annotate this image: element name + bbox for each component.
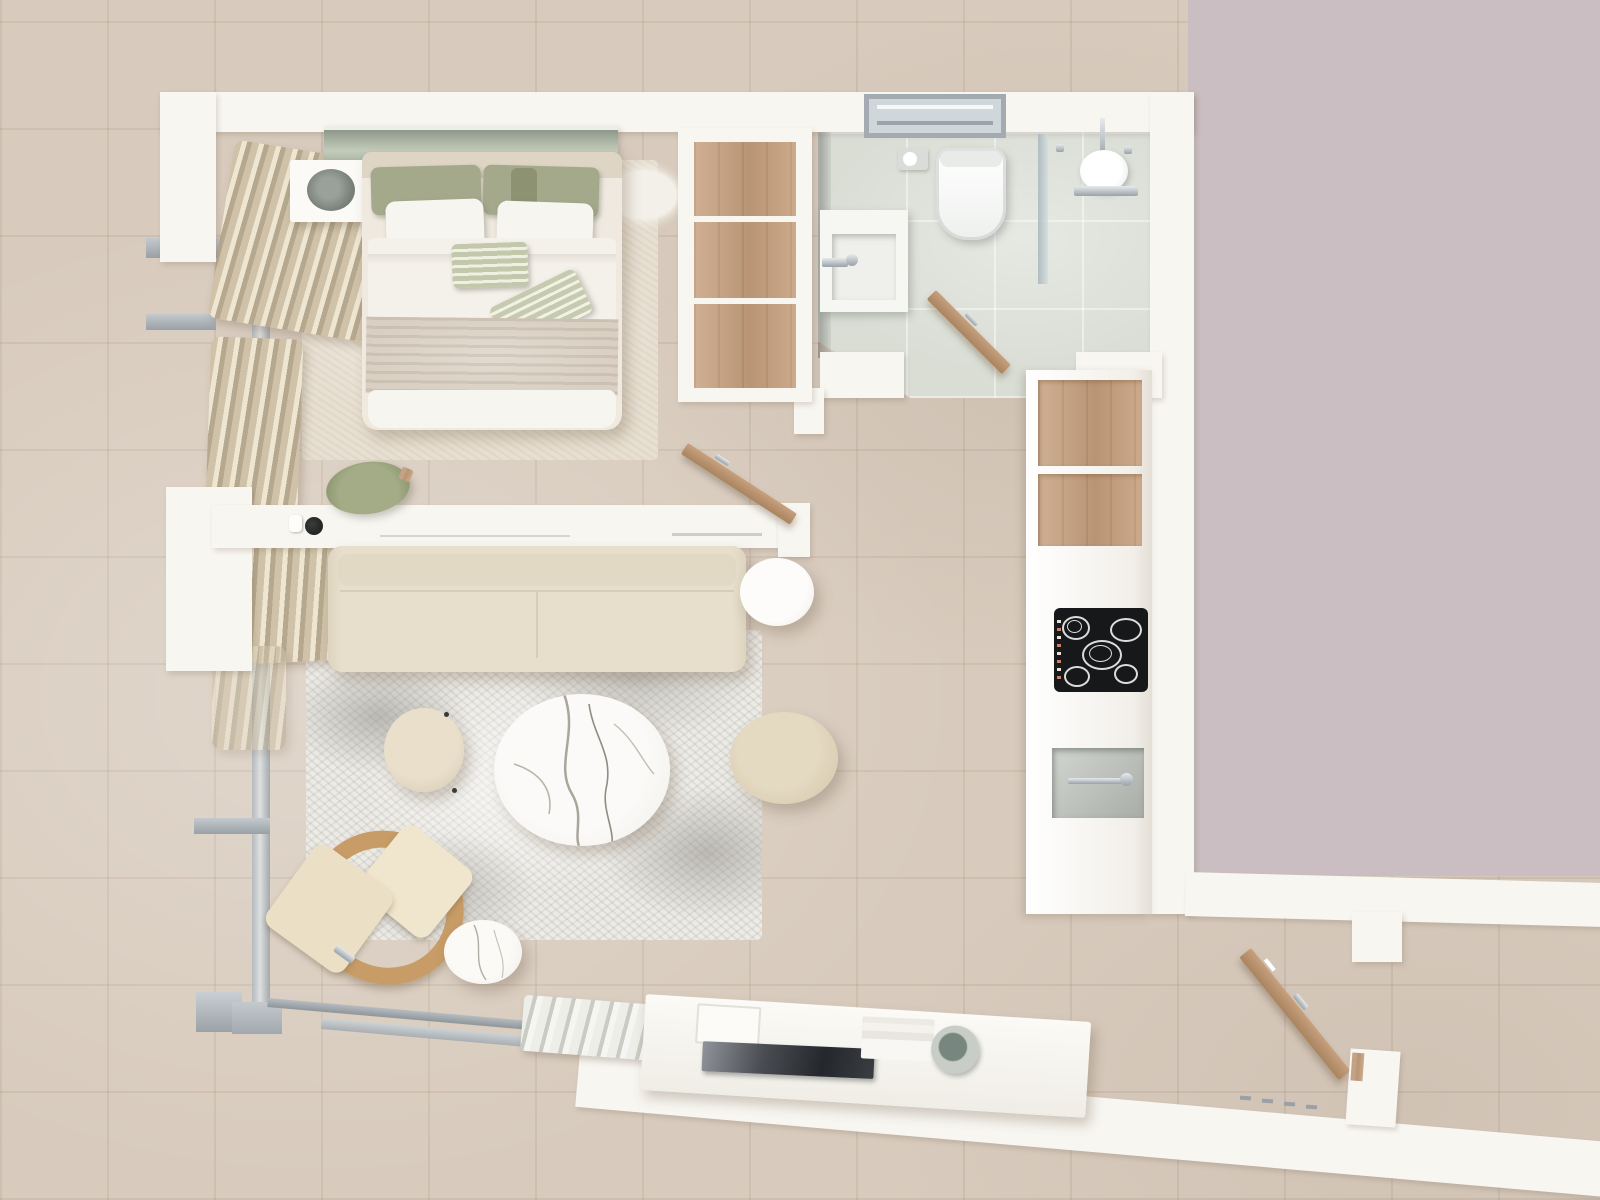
burner-ring <box>1089 645 1112 662</box>
bath-wall-left-segment <box>820 352 904 398</box>
threshold-step-2 <box>1262 1099 1273 1104</box>
door-frame-wood-tip <box>1350 1052 1364 1081</box>
threshold-step-4 <box>1306 1105 1317 1110</box>
threshold-step-1 <box>1240 1096 1251 1101</box>
shower-valve-right <box>1124 146 1132 154</box>
foot-blanket <box>366 317 619 396</box>
sofa-armrest-right <box>732 546 746 672</box>
speaker-cone-icon <box>307 169 355 211</box>
top-exterior-wall <box>160 92 1194 132</box>
striped-accent-pillow-1 <box>451 242 528 289</box>
burner-ring <box>1110 618 1142 642</box>
entry-door-frame <box>1345 1048 1400 1127</box>
burner-ring <box>1067 620 1082 633</box>
toilet-paper-holder <box>898 148 928 170</box>
kitchen-counter-run <box>1026 370 1152 914</box>
vanity-basin <box>832 234 896 300</box>
desk-groove <box>380 535 570 537</box>
sofa <box>328 546 746 672</box>
pouf-foot-dot <box>444 712 449 717</box>
faucet-icon <box>822 258 848 267</box>
left-exterior-wall <box>160 92 216 262</box>
cooktop-controls <box>1057 620 1061 680</box>
window-ledge-lower <box>194 818 270 834</box>
desk-kettle <box>305 517 323 535</box>
burner-ring <box>1064 666 1090 687</box>
sink-faucet-icon <box>1068 778 1126 784</box>
wardrobe-shelf-3 <box>694 304 796 388</box>
kitchen-shelf-1 <box>1038 380 1142 466</box>
marble-veins <box>444 920 522 984</box>
book-stack <box>861 1016 935 1061</box>
right-wall <box>1150 92 1194 914</box>
desk-groove-2 <box>672 533 762 536</box>
sofa-armrest-left <box>328 546 342 672</box>
marble-coffee-table <box>494 694 670 846</box>
shower-valve-left <box>1056 144 1064 152</box>
wardrobe-shelf-2 <box>694 222 796 298</box>
double-bed <box>362 152 622 430</box>
burner-ring <box>1114 664 1138 684</box>
sofa-seam-vertical <box>536 592 538 658</box>
round-pouf-small <box>384 708 464 792</box>
round-pouf-large <box>730 712 838 804</box>
wardrobe-open-shelves <box>678 128 812 402</box>
sofa-back-cushions <box>338 554 736 586</box>
floor-plan-render <box>0 0 1600 1200</box>
small-marble-table <box>444 920 522 984</box>
media-speaker <box>930 1024 981 1075</box>
kitchen-sink <box>1052 748 1144 818</box>
sink-faucet-base <box>1120 773 1133 786</box>
window-mullion-2 <box>877 121 993 125</box>
induction-cooktop <box>1054 608 1148 692</box>
toilet <box>936 148 1006 240</box>
white-side-table <box>740 558 814 626</box>
desk-cup <box>289 515 302 532</box>
faucet-knob <box>846 254 858 266</box>
shower-glass-partition <box>1038 134 1048 284</box>
toilet-tank <box>940 151 1002 167</box>
flat-tv <box>702 1041 875 1079</box>
vanity-sink <box>820 210 908 312</box>
wardrobe-shelf-1 <box>694 142 796 216</box>
marble-veins <box>494 694 670 846</box>
toilet-paper-roll <box>903 152 917 166</box>
pouf-foot-dot <box>452 788 457 793</box>
threshold-step-3 <box>1284 1102 1295 1107</box>
bed-foot-roll <box>368 390 616 428</box>
bathroom-window <box>864 94 1006 138</box>
corridor-pillar <box>1352 912 1402 962</box>
hifi-speaker-box <box>290 160 368 222</box>
kitchen-shelf-2 <box>1038 474 1142 546</box>
window-mullion <box>877 105 993 109</box>
curtain-bunch-lower <box>243 536 335 664</box>
neighbor-area <box>1188 0 1600 876</box>
window-ledge-upper <box>146 314 216 330</box>
shower-rail <box>1074 186 1138 196</box>
